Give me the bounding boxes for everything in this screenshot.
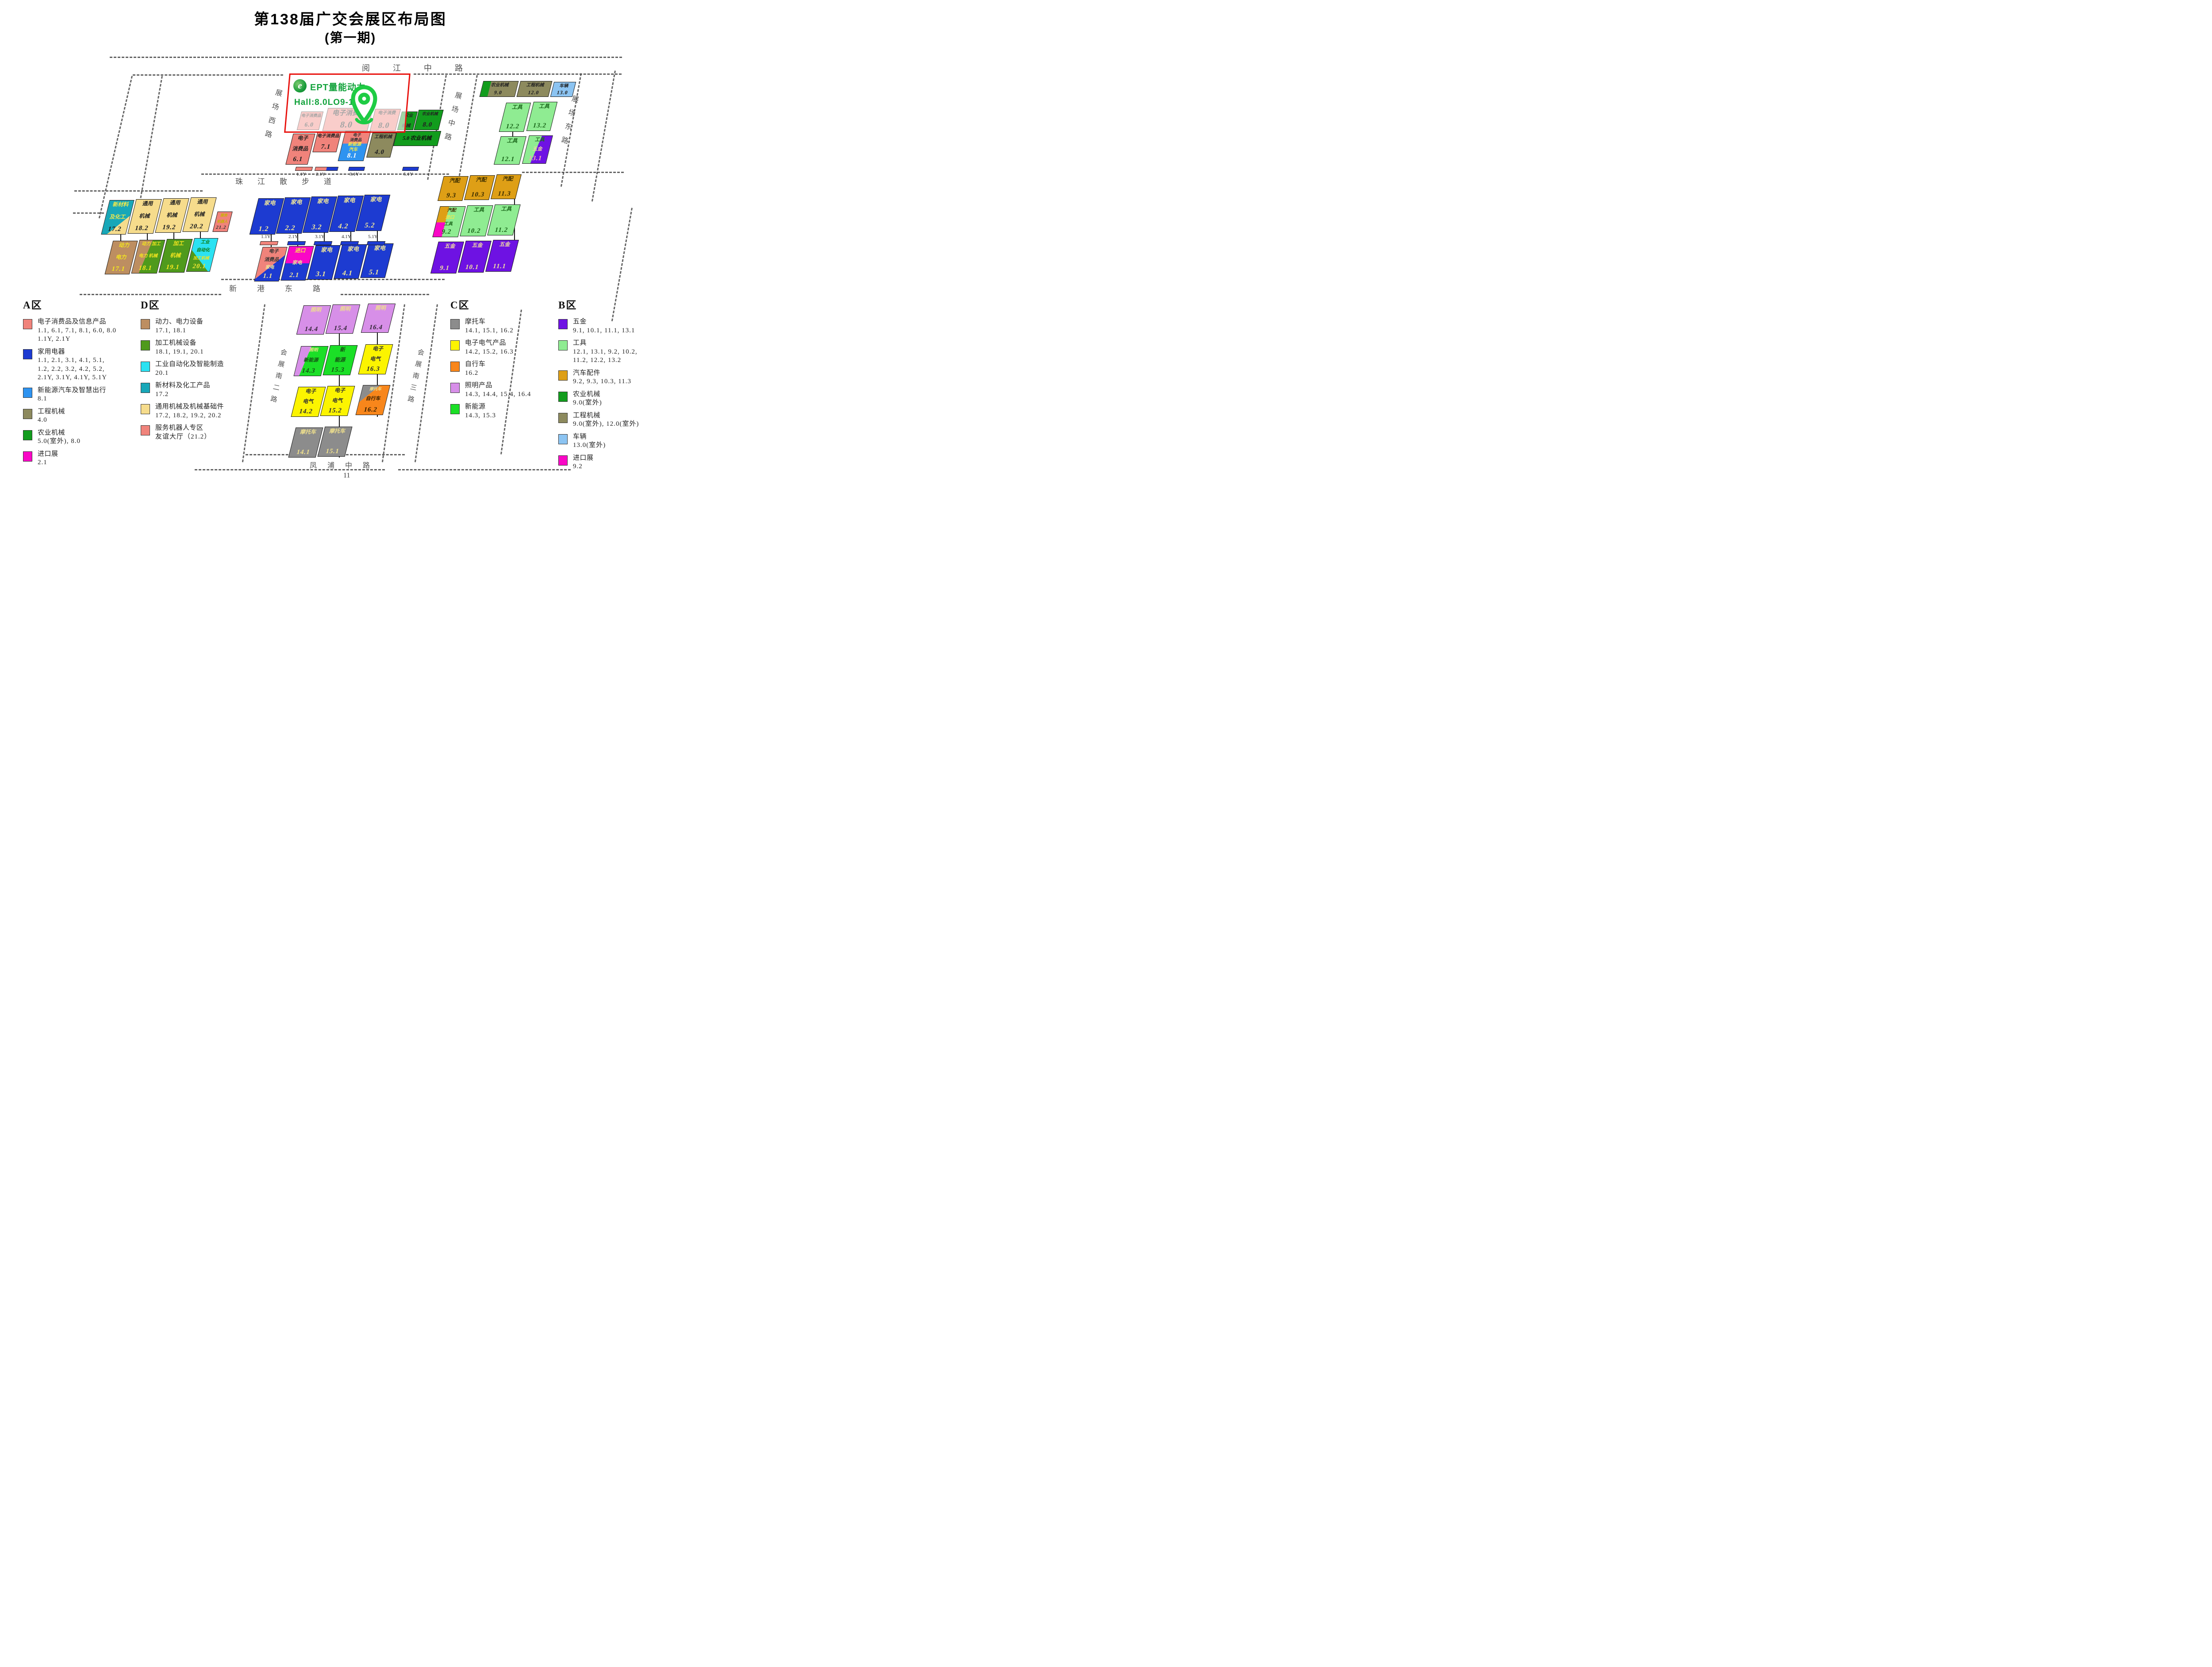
hall-label: 工程机械: [374, 135, 393, 140]
hall-block-15.4[interactable]: 照明15.4: [326, 304, 360, 334]
hall-number: 9.0: [494, 90, 503, 95]
legend-item: 摩托车14.1, 15.1, 16.2: [450, 318, 554, 335]
hall-number: 1.1: [262, 273, 273, 280]
ybar-label-1.1Y: 1.1Y: [261, 234, 271, 239]
hall-label: 动力 加工: [141, 242, 161, 247]
hall-number: 1.2: [257, 226, 269, 233]
hall-label: 新: [339, 347, 346, 353]
legend-item: 动力、电力设备17.1, 18.1: [141, 318, 259, 335]
hall-number: 3.2: [311, 224, 323, 231]
ybar-label-3.1Y: 3.1Y: [349, 172, 359, 177]
exhibitor-callout[interactable]: e EPT量能动力 Hall:8.0LO9-10: [284, 73, 411, 133]
legend-swatch: [450, 383, 460, 393]
hall-block-13.1[interactable]: 工具五金13.1: [522, 135, 553, 164]
hall-block-13.2[interactable]: 工具13.2: [526, 102, 557, 131]
hall-label: 新材料: [112, 202, 129, 208]
legend-swatch: [23, 388, 32, 398]
hall-number: 2.1: [288, 272, 300, 279]
dashed-road-line: [522, 172, 624, 173]
legend-title-a: A区: [23, 296, 137, 312]
legend-text: 车辆13.0(室外): [573, 433, 606, 450]
legend-swatch: [450, 319, 460, 329]
legend-text: 服务机器人专区友谊大厅（21.2）: [155, 424, 211, 441]
road-label-新港东路: 新港东路: [229, 282, 341, 293]
legend-item: 农业机械5.0(室外), 8.0: [23, 429, 137, 446]
hall-block-6.1[interactable]: 电子消费品6.1: [285, 134, 315, 165]
ybar-5.1Y: [402, 167, 419, 171]
hall-block-10.3[interactable]: 汽配10.3: [464, 175, 495, 200]
legend-nums: 2.1Y, 3.1Y, 4.1Y, 5.1Y: [38, 373, 107, 382]
legend-nums: 17.2, 18.2, 19.2, 20.2: [155, 412, 224, 420]
legend-name: 进口展: [38, 450, 58, 459]
hall-label: 家电: [343, 197, 356, 204]
legend-nums: 18.1, 19.1, 20.1: [155, 348, 204, 357]
hall-block-9.0[interactable]: 农业机械9.0: [480, 81, 519, 97]
legend-item: 电子电气产品14.2, 15.2, 16.3: [450, 339, 554, 356]
ybar-1.1Y: [260, 241, 278, 245]
hall-block-14.4[interactable]: 照明14.4: [296, 305, 331, 335]
road-label-珠江散步道: 珠江散步道: [235, 175, 346, 186]
hall-label: 新能源: [303, 358, 319, 363]
hall-label: 消费品: [264, 257, 280, 263]
hall-label: 机械: [169, 253, 181, 259]
hall-label: 电子: [372, 346, 384, 352]
legend-swatch: [558, 340, 568, 350]
legend-name: 新能源汽车及智慧出行: [38, 386, 106, 395]
hall-label: 汽配: [447, 208, 457, 213]
legend-text: 照明产品14.3, 14.4, 15.4, 16.4: [465, 381, 531, 399]
legend-item: 电子消费品及信息产品1.1, 6.1, 7.1, 8.1, 6.0, 8.01.…: [23, 318, 137, 344]
legend-swatch: [450, 340, 460, 350]
legend-nums: 9.2, 9.3, 10.3, 11.3: [573, 377, 631, 386]
legend-text: 电子消费品及信息产品1.1, 6.1, 7.1, 8.1, 6.0, 8.01.…: [38, 318, 116, 344]
hall-label: 家电: [265, 265, 275, 270]
hall-number: 4.0: [374, 149, 385, 156]
hall-number: 16.3: [365, 366, 380, 373]
hall-number: 11.1: [492, 263, 507, 270]
location-pin-icon: [350, 85, 378, 129]
hall-number: 14.1: [296, 449, 311, 456]
hall-label: 照明: [375, 305, 387, 312]
legend-nums: 14.3, 15.3: [465, 412, 496, 420]
dashed-road-line: [73, 212, 104, 214]
hall-number: 10.3: [470, 192, 485, 198]
hall-block-13.0[interactable]: 车辆13.0: [550, 82, 576, 97]
legend-title-c: C区: [450, 296, 554, 312]
legend-name: 车辆: [573, 433, 606, 442]
hall-label: 电子: [334, 388, 346, 394]
hall-number: 11.2: [494, 227, 509, 234]
map-canvas: 第138届广交会展区布局图 (第一期) e EPT量能动力 Hall:8.0LO…: [0, 0, 684, 484]
hall-label: 电力: [115, 254, 127, 261]
hall-number: 12.1: [500, 156, 515, 163]
ybar-label-2.1Y: 2.1Y: [288, 234, 298, 239]
hall-label: 工具: [443, 222, 453, 227]
legend-name: 农业机械: [573, 390, 602, 399]
legend-swatch: [558, 319, 568, 329]
hall-number: 9.2: [441, 229, 452, 235]
dashed-road-line: [74, 190, 203, 192]
hall-label: 电子: [305, 389, 317, 395]
legend-text: 工具12.1, 13.1, 9.2, 10.2,11.2, 12.2, 13.2: [573, 339, 637, 365]
hall-block-12.2[interactable]: 工具12.2: [499, 103, 531, 132]
legend-name: 五金: [573, 318, 635, 327]
hall-block-8.0[interactable]: 农业机械8.0: [414, 110, 443, 130]
legend-text: 新材料及化工产品17.2: [155, 381, 210, 399]
legend-text: 农业机械9.0(室外): [573, 390, 602, 408]
hall-label: 摩托车: [329, 428, 346, 435]
legend-name: 自行车: [465, 360, 486, 369]
hall-block-4.0[interactable]: 工程机械4.0: [366, 133, 396, 158]
legend-nums: 2.1: [38, 458, 58, 467]
hall-block-8.1[interactable]: 电子消费品新能源汽车8.1: [338, 131, 371, 161]
legend-title-b: B区: [558, 296, 679, 312]
legend-item: 服务机器人专区友谊大厅（21.2）: [141, 424, 259, 441]
road-label-会展南二路: 会展南二路: [267, 348, 289, 408]
legend-nums: 16.2: [465, 369, 486, 378]
legend-text: 进口展9.2: [573, 454, 594, 471]
hall-label: 电子消费品: [317, 134, 340, 139]
legend-nums: 12.1, 13.1, 9.2, 10.2,: [573, 348, 637, 357]
legend-name: 动力、电力设备: [155, 318, 204, 327]
dashed-road-line: [398, 469, 571, 470]
hall-label: 工具: [511, 104, 523, 111]
legend-name: 家用电器: [38, 348, 107, 357]
hall-label: 工具: [507, 138, 518, 144]
legend-item: 加工机械设备18.1, 19.1, 20.1: [141, 339, 259, 356]
hall-number: 14.4: [304, 326, 319, 333]
legend-item: 通用机械及机械基础件17.2, 18.2, 19.2, 20.2: [141, 403, 259, 420]
ybar-4.1Y: [340, 241, 359, 245]
hall-number: 20.1: [192, 263, 207, 270]
legend-nums: 8.1: [38, 395, 106, 404]
ybar-label-3.1Y: 3.1Y: [315, 234, 325, 239]
legend-text: 动力、电力设备17.1, 18.1: [155, 318, 204, 335]
hall-label: 照明: [339, 306, 351, 312]
hall-number: 4.2: [337, 223, 349, 230]
hall-number: 11.3: [497, 191, 511, 197]
ybar-label-5.1Y: 5.1Y: [403, 172, 413, 177]
hall-number: 5.1: [368, 269, 380, 276]
legend-item: 工程机械9.0(室外), 12.0(室外): [558, 412, 679, 429]
hall-block-21.2[interactable]: 服务机器人21.2: [212, 212, 232, 232]
ybar-label-4.1Y: 4.1Y: [342, 234, 351, 239]
dashed-road-line: [591, 70, 616, 201]
hall-number: 14.2: [298, 408, 313, 415]
legend-item: 新能源14.3, 15.3: [450, 403, 554, 420]
hall-number: 18.2: [134, 225, 149, 232]
ybar-label-1.1Y: 1.1Y: [296, 172, 306, 177]
hall-label: 电子: [269, 249, 280, 254]
hall-label: 车辆: [559, 84, 569, 89]
hall-label: 工程机械: [526, 83, 545, 88]
hall-label: 5.0 农业机械: [402, 135, 432, 142]
dashed-road-line: [133, 74, 283, 76]
legend-swatch: [141, 404, 150, 414]
legend-a: A区电子消费品及信息产品1.1, 6.1, 7.1, 8.1, 6.0, 8.0…: [23, 296, 137, 471]
legend-text: 工程机械4.0: [38, 408, 65, 425]
dashed-road-line: [99, 76, 133, 218]
hall-label: 电气: [369, 356, 381, 362]
hall-number: 15.4: [333, 325, 348, 332]
dashed-road-line: [80, 294, 221, 295]
dashed-road-line: [110, 57, 622, 58]
hall-number: 7.1: [320, 144, 331, 150]
legend-nums: 14.1, 15.1, 16.2: [465, 327, 514, 335]
hall-block-16.2[interactable]: 摩托车自行车16.2: [356, 385, 391, 415]
hall-label: 机械: [138, 213, 150, 219]
hall-number: 19.2: [161, 224, 177, 231]
legend-nums: 友谊大厅（21.2）: [155, 433, 211, 442]
legend-nums: 17.1, 18.1: [155, 327, 204, 335]
legend-name: 汽车配件: [573, 369, 631, 378]
legend-name: 工程机械: [38, 408, 65, 416]
legend-item: 汽车配件9.2, 9.3, 10.3, 11.3: [558, 369, 679, 386]
legend-nums: 1.1, 6.1, 7.1, 8.1, 6.0, 8.0: [38, 327, 116, 335]
legend-nums: 1.1Y, 2.1Y: [38, 335, 116, 344]
hall-number: 13.0: [556, 90, 568, 95]
hall-block-12.1[interactable]: 工具12.1: [494, 136, 526, 165]
hall-block-16.3[interactable]: 电子电气16.3: [358, 344, 393, 374]
hall-label: 消费品: [292, 146, 309, 152]
legend-nums: 1.2, 2.2, 3.2, 4.2, 5.2,: [38, 365, 107, 374]
dashed-road-line: [140, 76, 163, 198]
legend-item: 进口展9.2: [558, 454, 679, 471]
dashed-road-line: [341, 294, 429, 295]
legend-nums: 14.3, 14.4, 15.4, 16.4: [465, 390, 531, 399]
page-title: 第138届广交会展区布局图: [254, 7, 447, 29]
hall-number: 10.1: [465, 264, 480, 271]
legend-swatch: [141, 383, 150, 393]
legend-nums: 9.2: [573, 462, 594, 471]
hall-number: 10.2: [466, 228, 481, 235]
hall-label: 工具: [538, 104, 550, 110]
legend-swatch: [23, 319, 32, 329]
road-label-阅江中路: 阅江中路: [362, 62, 486, 73]
ept-logo-icon: e: [293, 79, 307, 92]
hall-label: 机器人: [217, 219, 228, 223]
hall-label: 五金: [499, 242, 511, 248]
hall-label: 电子: [297, 135, 309, 142]
hall-number: 21.2: [215, 225, 227, 230]
hall-label: 及化工: [109, 214, 126, 220]
legend-text: 加工机械设备18.1, 19.1, 20.1: [155, 339, 204, 356]
legend-text: 新能源汽车及智慧出行8.1: [38, 386, 106, 404]
hall-label: 电气: [302, 399, 314, 405]
legend-swatch: [141, 340, 150, 350]
road-label-会展南三路: 会展南三路: [404, 348, 426, 408]
road-label-展场西路: 展场西路: [260, 88, 284, 145]
legend-nums: 9.1, 10.1, 11.1, 13.1: [573, 327, 635, 335]
legend-swatch: [23, 430, 32, 440]
legend-c: C区摩托车14.1, 15.1, 16.2电子电气产品14.2, 15.2, 1…: [450, 296, 554, 424]
hall-label: 服务: [220, 213, 228, 217]
hall-label: 自动化: [196, 248, 211, 253]
hall-number: 13.2: [532, 123, 547, 129]
hall-label: 新能源: [347, 142, 362, 147]
legend-swatch: [558, 370, 568, 381]
hall-label: 农业机械: [491, 83, 510, 88]
hall-label: 机械: [193, 212, 205, 218]
hall-number: 19.1: [165, 264, 180, 271]
hall-label: 五金: [532, 146, 543, 152]
hall-number: 8.0: [422, 122, 433, 128]
legend-swatch: [450, 362, 460, 372]
hall-label: 电子: [353, 133, 362, 137]
hall-label: 汽车: [348, 147, 358, 153]
legend-text: 家用电器1.1, 2.1, 3.1, 4.1, 5.1,1.2, 2.2, 3.…: [38, 348, 107, 382]
page-number: 11: [343, 472, 350, 480]
legend-text: 工程机械9.0(室外), 12.0(室外): [573, 412, 639, 429]
hall-block-15.3[interactable]: 新能源15.3: [323, 345, 358, 375]
hall-number: 3.1: [315, 271, 327, 278]
legend-nums: 13.0(室外): [573, 441, 606, 450]
hall-label: 动力: [118, 243, 130, 249]
legend-name: 通用机械及机械基础件: [155, 403, 224, 412]
dashed-road-line: [414, 73, 622, 75]
legend-item: 自行车16.2: [450, 360, 554, 377]
hall-label: 摩托车: [300, 429, 317, 435]
hall-number: 9.3: [445, 192, 457, 199]
hall-label: 通用: [169, 200, 181, 206]
hall-label: 通用: [142, 201, 154, 207]
ybar-label-2.1Y: 2.1Y: [316, 172, 326, 177]
hall-label: 工具: [473, 207, 485, 213]
hall-label: 工具: [500, 206, 512, 212]
legend-title-d: D区: [141, 296, 259, 312]
legend-swatch: [23, 349, 32, 359]
legend-name: 摩托车: [465, 318, 514, 327]
road-label-凤浦中路: 凤浦中路: [310, 459, 380, 470]
hall-block-9.3[interactable]: 汽配9.3: [438, 176, 469, 201]
hall-number: 15.3: [330, 367, 345, 373]
hall-label: 汽配: [449, 178, 461, 184]
legend-text: 工业自动化及智能制造20.1: [155, 360, 224, 377]
hall-label: 家电: [316, 198, 330, 205]
hall-block-5.0[interactable]: 5.0 农业机械: [393, 131, 441, 146]
legend-name: 农业机械: [38, 429, 81, 438]
legend-b: B区五金9.1, 10.1, 11.1, 13.1工具12.1, 13.1, 9…: [558, 296, 679, 475]
legend-name: 工程机械: [573, 412, 639, 420]
legend-name: 服务机器人专区: [155, 424, 211, 433]
legend-item: 工程机械4.0: [23, 408, 137, 425]
hall-number: 2.2: [284, 225, 296, 232]
hall-label: 摩托车: [369, 387, 382, 391]
hall-label: 家电: [292, 260, 303, 266]
legend-name: 工具: [573, 339, 637, 348]
legend-name: 照明产品: [465, 381, 531, 390]
hall-number: 5.2: [364, 222, 376, 229]
legend-item: 新能源汽车及智慧出行8.1: [23, 386, 137, 404]
hall-label: 电力 机械: [138, 254, 158, 259]
hall-label: 照明: [310, 307, 322, 313]
legend-item: 家用电器1.1, 2.1, 3.1, 4.1, 5.1,1.2, 2.2, 3.…: [23, 348, 137, 382]
legend-swatch: [141, 362, 150, 372]
hall-label: 工业: [200, 240, 211, 245]
legend-nums: 9.0(室外), 12.0(室外): [573, 420, 639, 429]
legend-text: 新能源14.3, 15.3: [465, 403, 496, 420]
hall-number: 4.1: [342, 270, 353, 277]
legend-text: 五金9.1, 10.1, 11.1, 13.1: [573, 318, 635, 335]
hall-number: 12.2: [505, 123, 520, 130]
legend-name: 进口展: [573, 454, 594, 463]
ybar-3.1Y: [314, 241, 332, 245]
legend-swatch: [141, 319, 150, 329]
hall-block-7.1[interactable]: 电子消费品7.1: [312, 132, 341, 152]
hall-label: 家电: [347, 246, 360, 253]
legend-swatch: [23, 451, 32, 462]
hall-number: 15.2: [327, 408, 342, 414]
legend-nums: 9.0(室外): [573, 399, 602, 408]
legend-d: D区动力、电力设备17.1, 18.1加工机械设备18.1, 19.1, 20.…: [141, 296, 259, 445]
hall-label: 家电: [320, 247, 334, 254]
legend-name: 加工机械设备: [155, 339, 204, 348]
hall-label: 五金: [444, 243, 456, 250]
legend-nums: 14.2, 15.2, 16.3: [465, 348, 514, 357]
dashed-road-line: [458, 75, 478, 180]
legend-swatch: [558, 455, 568, 466]
legend-swatch: [558, 413, 568, 423]
road-label-展场东路: 展场东路: [556, 94, 580, 151]
hall-label: 电气: [331, 398, 343, 404]
legend-text: 电子电气产品14.2, 15.2, 16.3: [465, 339, 514, 356]
legend-text: 通用机械及机械基础件17.2, 18.2, 19.2, 20.2: [155, 403, 224, 420]
legend-item: 进口展2.1: [23, 450, 137, 467]
hall-block-12.0[interactable]: 工程机械12.0: [517, 81, 553, 97]
hall-label: 机械: [166, 212, 178, 219]
legend-nums: 20.1: [155, 369, 224, 378]
hall-label: 家电: [373, 245, 387, 252]
hall-label: 家电: [290, 199, 303, 206]
hall-label: 自行车: [365, 396, 381, 402]
hall-number: 16.4: [369, 324, 384, 331]
hall-number: 17.1: [111, 266, 126, 273]
hall-number: 16.2: [363, 407, 378, 413]
legend-swatch: [141, 425, 150, 435]
hall-number: 18.1: [138, 265, 153, 272]
legend-nums: 17.2: [155, 390, 210, 399]
legend-text: 自行车16.2: [465, 360, 486, 377]
hall-block-16.4[interactable]: 照明16.4: [361, 304, 396, 333]
ybar-2.1Y: [287, 241, 306, 245]
hall-number: 20.2: [189, 223, 204, 230]
hall-number: 13.1: [528, 155, 543, 162]
hall-number: 12.0: [527, 90, 540, 95]
hall-block-15.2[interactable]: 电子电气15.2: [320, 386, 355, 416]
page-subtitle: (第一期): [325, 27, 376, 46]
hall-label: 家电: [263, 200, 276, 207]
hall-number: 9.1: [439, 265, 450, 272]
hall-block-11.3[interactable]: 汽配11.3: [491, 174, 522, 199]
legend-item: 农业机械9.0(室外): [558, 390, 679, 408]
legend-item: 工具12.1, 13.1, 9.2, 10.2,11.2, 12.2, 13.2: [558, 339, 679, 365]
hall-label: 工具: [534, 137, 545, 143]
hall-label: 加工机械: [193, 256, 210, 260]
hall-number: 6.1: [292, 156, 303, 163]
hall-label: 五金: [472, 243, 484, 249]
legend-nums: 11.2, 12.2, 13.2: [573, 356, 637, 365]
legend-swatch: [450, 404, 460, 414]
hall-text: Hall:8.0LO9-10: [294, 98, 359, 108]
hall-number: 15.1: [325, 448, 340, 455]
ybar-2.1Y: [315, 167, 338, 171]
hall-label: 照明: [309, 348, 319, 353]
legend-text: 摩托车14.1, 15.1, 16.2: [465, 318, 514, 335]
legend-item: 照明产品14.3, 14.4, 15.4, 16.4: [450, 381, 554, 399]
hall-number: 14.3: [301, 368, 316, 374]
hall-block-15.1[interactable]: 摩托车15.1: [318, 427, 353, 457]
legend-name: 新材料及化工产品: [155, 381, 210, 390]
